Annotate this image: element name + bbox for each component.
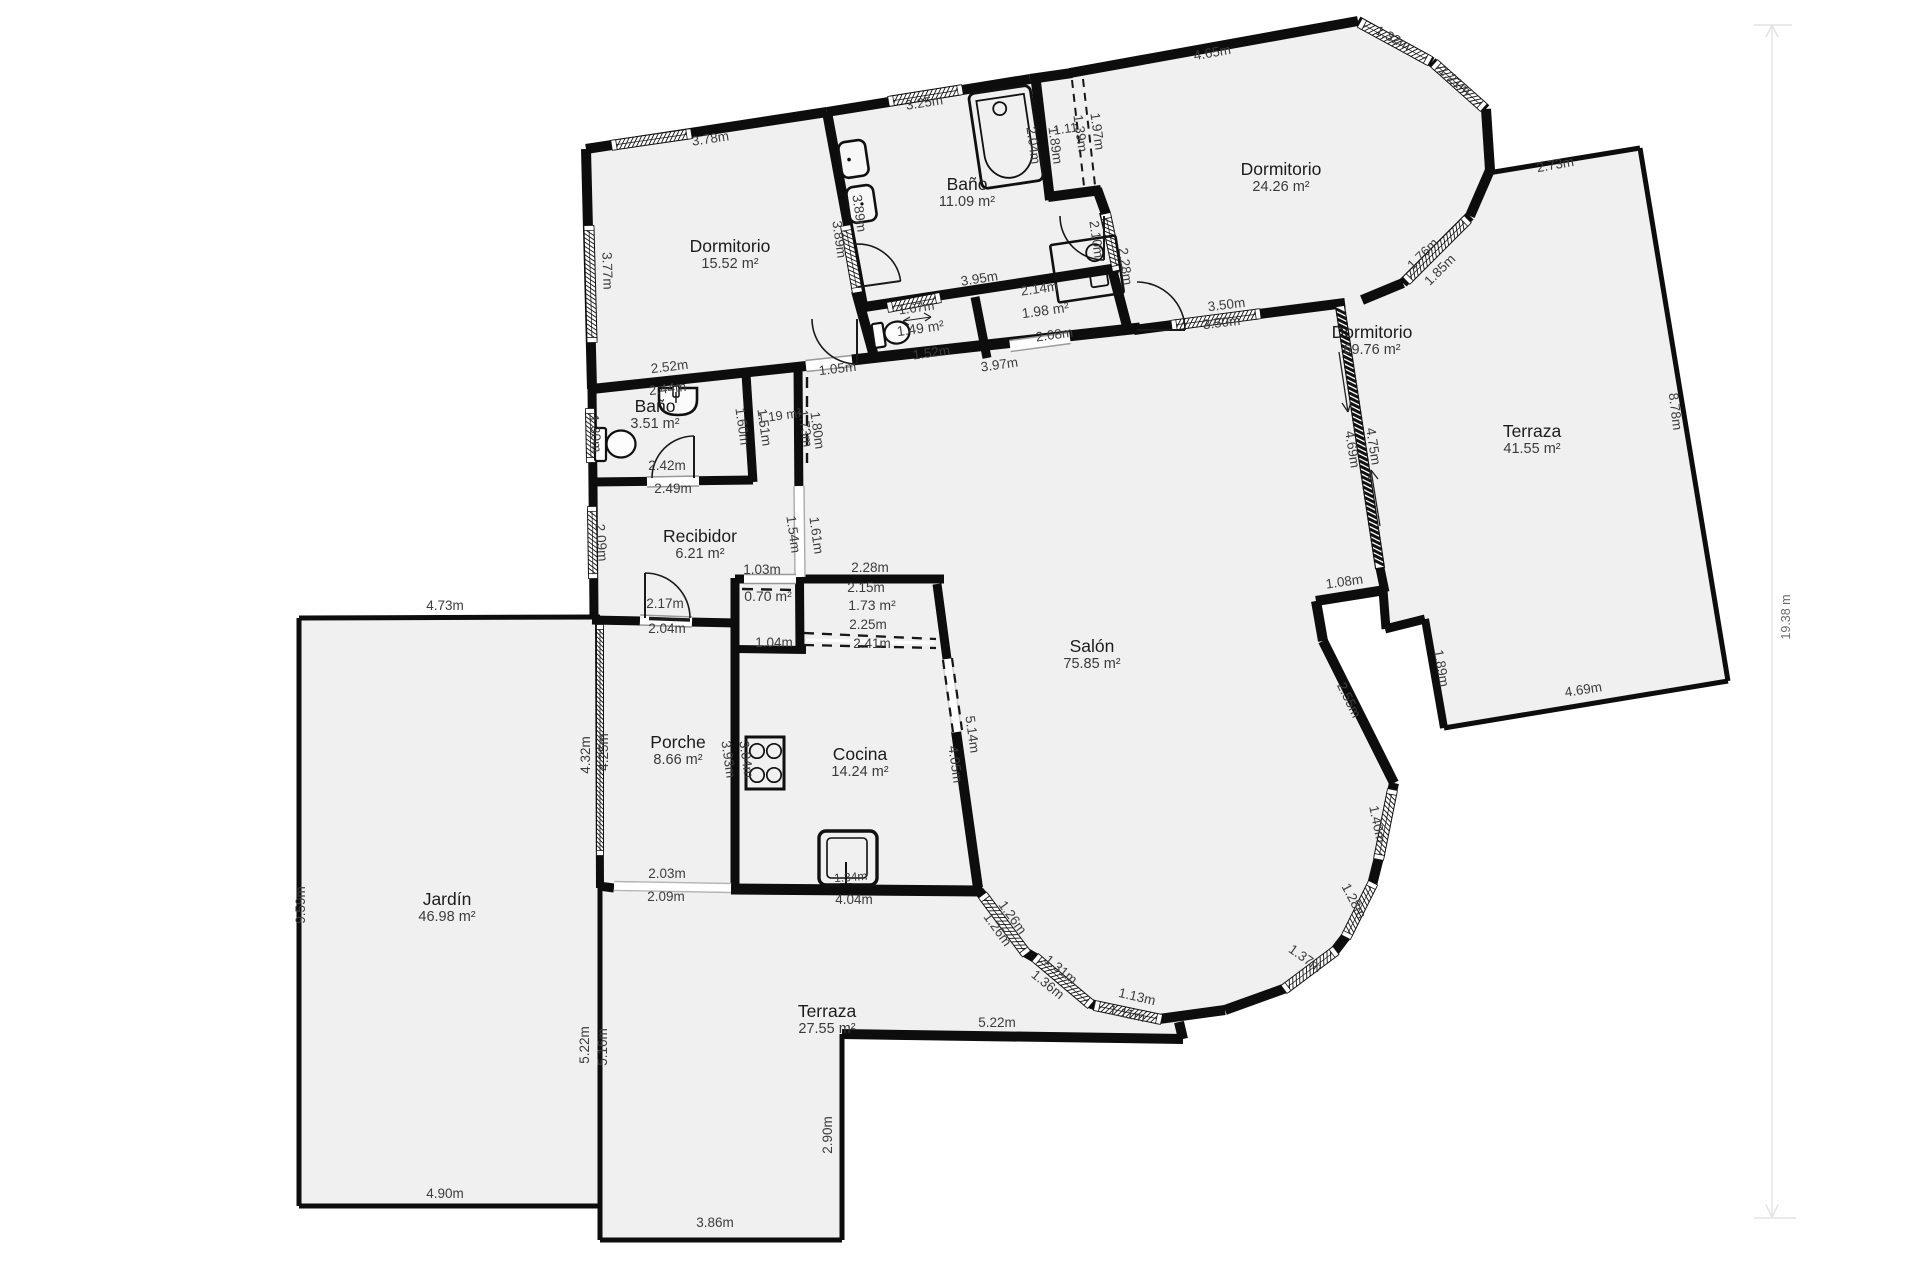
svg-text:Terraza: Terraza <box>1503 421 1562 441</box>
svg-text:11.09 m²: 11.09 m² <box>939 194 995 210</box>
svg-text:41.55 m²: 41.55 m² <box>1503 441 1560 457</box>
svg-text:Cocina: Cocina <box>833 744 888 764</box>
svg-text:Porche: Porche <box>650 732 705 752</box>
svg-text:Jardín: Jardín <box>423 889 472 909</box>
svg-text:3.51 m²: 3.51 m² <box>630 416 679 432</box>
svg-text:3.77m: 3.77m <box>599 252 615 290</box>
svg-text:4.25m: 4.25m <box>596 733 611 771</box>
svg-text:Baño: Baño <box>635 396 676 416</box>
svg-text:2.03m: 2.03m <box>648 866 686 881</box>
svg-text:2.25m: 2.25m <box>849 617 887 632</box>
svg-text:46.98 m²: 46.98 m² <box>418 909 475 925</box>
svg-text:4.90m: 4.90m <box>426 1186 464 1201</box>
svg-text:4.32m: 4.32m <box>578 736 593 774</box>
svg-text:Dormitorio: Dormitorio <box>1332 322 1413 342</box>
svg-text:19.38 m: 19.38 m <box>1779 594 1793 639</box>
svg-text:Dormitorio: Dormitorio <box>690 236 771 256</box>
svg-text:27.55 m²: 27.55 m² <box>798 1021 855 1037</box>
svg-text:Terraza: Terraza <box>798 1001 857 1021</box>
svg-text:24.26 m²: 24.26 m² <box>1252 179 1309 195</box>
svg-text:2.90m: 2.90m <box>820 1116 835 1154</box>
svg-text:1.03m: 1.03m <box>743 562 781 577</box>
svg-text:Baño: Baño <box>947 174 988 194</box>
svg-text:2.28m: 2.28m <box>851 560 889 575</box>
svg-text:1.04m: 1.04m <box>755 635 793 650</box>
svg-text:2.41m: 2.41m <box>853 636 891 651</box>
svg-text:2.17m: 2.17m <box>646 596 684 611</box>
svg-text:14.24 m²: 14.24 m² <box>831 764 888 780</box>
svg-text:2.04m: 2.04m <box>648 621 686 636</box>
svg-text:15.52 m²: 15.52 m² <box>701 256 758 272</box>
svg-text:Dormitorio: Dormitorio <box>1241 159 1322 179</box>
svg-text:4.73m: 4.73m <box>426 598 464 613</box>
svg-text:4.04m: 4.04m <box>835 892 873 907</box>
svg-text:5.22m: 5.22m <box>577 1026 592 1064</box>
svg-text:1.73 m²: 1.73 m² <box>848 597 896 613</box>
svg-text:8.66 m²: 8.66 m² <box>653 752 702 768</box>
svg-text:2.15m: 2.15m <box>847 580 885 595</box>
svg-text:Recibidor: Recibidor <box>663 526 737 546</box>
svg-text:Salón: Salón <box>1070 636 1115 656</box>
svg-text:5.16m: 5.16m <box>595 1028 610 1066</box>
svg-text:1.34m: 1.34m <box>834 869 868 885</box>
svg-text:2.42m: 2.42m <box>648 458 686 473</box>
svg-text:5.22m: 5.22m <box>978 1015 1016 1030</box>
svg-text:0.70 m²: 0.70 m² <box>744 588 792 604</box>
svg-text:2.09m: 2.09m <box>647 889 685 904</box>
svg-text:9.59m: 9.59m <box>293 886 308 924</box>
svg-text:2.49m: 2.49m <box>654 481 692 496</box>
svg-text:3.86m: 3.86m <box>696 1215 734 1230</box>
svg-text:69.76 m²: 69.76 m² <box>1343 342 1400 358</box>
svg-text:6.21 m²: 6.21 m² <box>675 546 724 562</box>
svg-text:75.85 m²: 75.85 m² <box>1063 656 1120 672</box>
